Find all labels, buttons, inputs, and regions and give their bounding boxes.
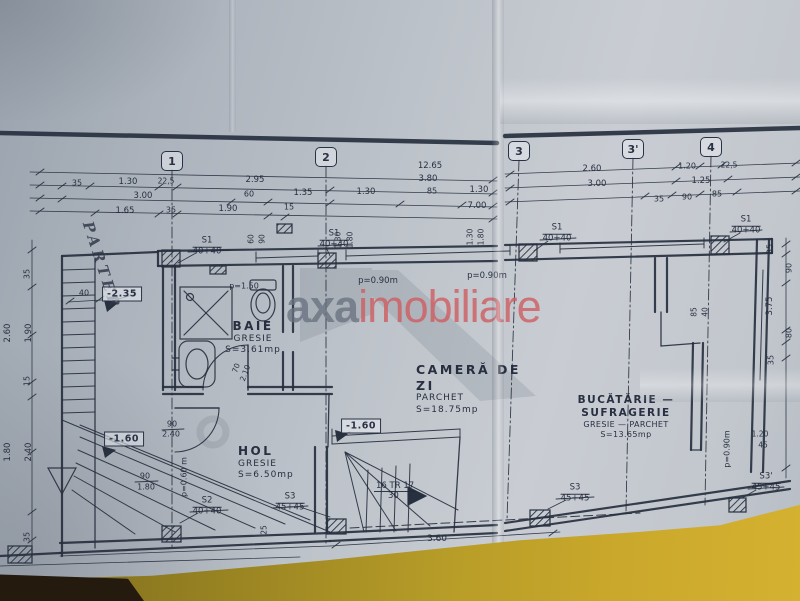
dimension-label: 2.40 bbox=[24, 443, 34, 462]
dimension-label: 90 bbox=[167, 420, 177, 429]
dimension-label: 3.00 bbox=[134, 191, 153, 201]
dimension-label: 1.30 bbox=[466, 229, 475, 246]
dimension-label: 3.75 bbox=[765, 297, 775, 316]
dimension-label: 1.30 bbox=[119, 177, 138, 187]
grid-axis-bubble: 3 bbox=[508, 141, 530, 161]
dimension-label: 1.80 bbox=[3, 443, 13, 462]
dimension-label: 15 bbox=[23, 376, 32, 386]
dimension-label: 1.90 bbox=[219, 204, 238, 214]
dimension-label: 90 bbox=[785, 263, 794, 273]
dimension-label: 1.90 bbox=[24, 324, 34, 343]
annotation-layer: 12.653.80351.3022,52.953.00601.351.30851… bbox=[0, 0, 800, 601]
dimension-label: 45 bbox=[758, 441, 768, 450]
column-size: 40+40 bbox=[320, 241, 349, 251]
column-size: 45+45 bbox=[752, 484, 781, 494]
dimension-label: 3.00 bbox=[588, 179, 607, 189]
dimension-label: 35 bbox=[23, 269, 32, 279]
column-label: S345+45 bbox=[276, 493, 305, 514]
dimension-label: 1.20 bbox=[678, 162, 696, 171]
column-label: S140+40 bbox=[193, 237, 222, 258]
grid-axis-bubble: 3' bbox=[622, 139, 644, 159]
dimension-label: 22,5 bbox=[158, 177, 175, 186]
column-size: 40+40 bbox=[193, 248, 222, 258]
dimension-label: 35 bbox=[767, 355, 776, 365]
dimension-label: 3.60 bbox=[427, 534, 447, 544]
column-label: S140+40 bbox=[543, 224, 572, 245]
dimension-label: 35 bbox=[654, 195, 664, 204]
dimension-label: 40 bbox=[79, 289, 89, 298]
dimension-label: 2.60 bbox=[3, 324, 13, 343]
dimension-label: 12.65 bbox=[418, 161, 442, 171]
dimension-label: p=0.60 m bbox=[180, 457, 189, 497]
dimension-label: 60 bbox=[247, 234, 256, 244]
column-size: 45+45 bbox=[561, 495, 590, 505]
column-size: 40+40 bbox=[732, 227, 761, 237]
dimension-label: 35 bbox=[72, 179, 82, 188]
dimension-label: 1.35 bbox=[294, 188, 313, 198]
dimension-label: 35 bbox=[166, 206, 176, 215]
dimension-label: 2.40 bbox=[162, 430, 180, 439]
dimension-label: 85 bbox=[427, 187, 437, 196]
level-marker: -2.35 bbox=[102, 287, 142, 302]
dimension-label: 35 bbox=[766, 244, 775, 254]
dimension-label: p=0.90m bbox=[723, 430, 732, 467]
column-size: 45+45 bbox=[276, 504, 305, 514]
dimension-label: 25 bbox=[260, 525, 269, 535]
dimension-label: 1.80 bbox=[137, 483, 155, 492]
level-marker: -1.60 bbox=[104, 432, 144, 447]
column-label: S345+45 bbox=[561, 484, 590, 505]
dimension-label: p=0.90m bbox=[358, 276, 398, 286]
dimension-label: 22,5 bbox=[721, 161, 738, 170]
column-label: S240+40 bbox=[193, 497, 222, 518]
grid-axis-bubble: 1 bbox=[161, 151, 183, 171]
column-label: S140+40 bbox=[732, 216, 761, 237]
level-marker: -1.60 bbox=[341, 419, 381, 434]
grid-axis-bubble: 4 bbox=[700, 137, 722, 157]
dimension-label: 60 bbox=[244, 190, 254, 199]
dimension-label: 1.30 bbox=[470, 185, 489, 195]
dimension-label: 1.20 bbox=[752, 430, 769, 439]
dimension-label: 40 bbox=[701, 307, 710, 317]
dimension-label: 3.80 bbox=[419, 174, 438, 184]
dimension-label: 2.95 bbox=[246, 175, 265, 185]
dimension-label: 85 bbox=[712, 190, 722, 199]
dimension-label: 1.25 bbox=[692, 176, 711, 186]
dimension-label: 1.80 bbox=[477, 229, 486, 246]
dimension-label: 1.65 bbox=[116, 206, 135, 216]
dimension-label: 80 bbox=[785, 328, 794, 338]
dimension-label: 90 bbox=[258, 234, 267, 244]
dimension-label: 90 bbox=[140, 472, 150, 481]
column-size: 40+40 bbox=[193, 508, 222, 518]
dimension-label: 1.30 bbox=[357, 187, 376, 197]
dimension-label: 85 bbox=[690, 307, 699, 317]
dimension-label: 90 bbox=[682, 193, 692, 202]
floor-plan-photo: axaimobiliare PARTER BAIE GRESIE S=3.61m… bbox=[0, 0, 800, 601]
dimension-label: 7.00 bbox=[468, 201, 487, 211]
dimension-label: 15 bbox=[284, 203, 294, 212]
grid-axis-bubble: 2 bbox=[315, 147, 337, 167]
column-label: S140+40 bbox=[320, 230, 349, 251]
dimension-label: p=0.90m bbox=[467, 271, 507, 281]
column-size: 40+40 bbox=[543, 235, 572, 245]
column-label: S3'45+45 bbox=[752, 473, 781, 494]
dimension-label: p=1.50 bbox=[229, 282, 259, 291]
dimension-label: 35 bbox=[23, 532, 32, 542]
dimension-label: 2.60 bbox=[583, 164, 602, 174]
